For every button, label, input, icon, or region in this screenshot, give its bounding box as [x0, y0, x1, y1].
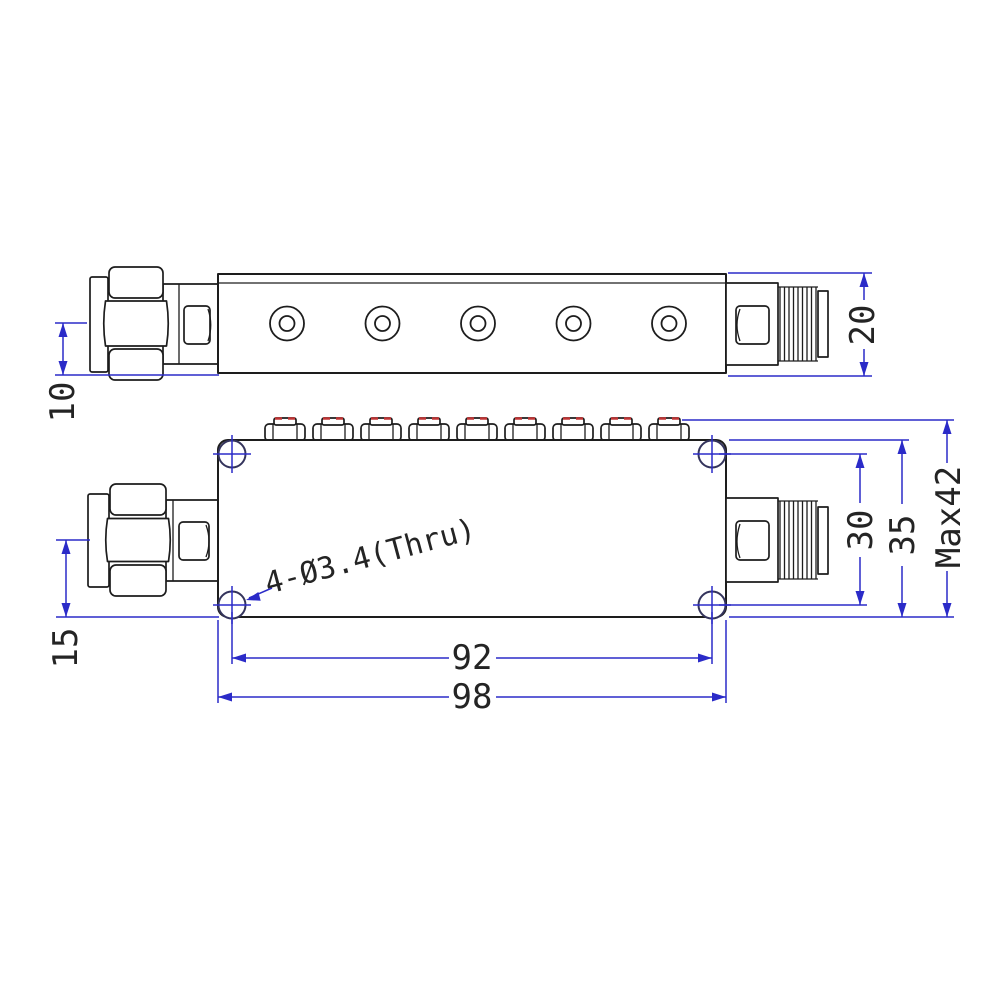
arrowhead-icon	[943, 420, 952, 434]
dim-20-label: 20	[843, 305, 883, 346]
arrowhead-icon	[698, 654, 712, 663]
plan-left-connector-icon	[88, 484, 218, 596]
tuning-screw-icon	[649, 418, 689, 441]
dim-98-label: 98	[452, 677, 493, 717]
side-view	[90, 267, 828, 380]
arrowhead-icon	[62, 603, 71, 617]
technical-drawing-page: 10 20 15 30 35	[0, 0, 1000, 1000]
tuning-screw-icon	[313, 418, 353, 441]
dim-15-label: 15	[46, 628, 86, 669]
dim-max42-label: Max42	[929, 466, 969, 568]
dim-92-label: 92	[452, 638, 493, 678]
arrowhead-icon	[860, 362, 869, 376]
hex-nut-top-flat	[109, 267, 163, 298]
hex-nut-top-flat	[110, 484, 166, 515]
arrowhead-icon	[712, 693, 726, 702]
dim-92: 92	[232, 612, 712, 678]
arrowhead-icon	[943, 603, 952, 617]
side-right-connector-icon	[726, 283, 828, 365]
dim-30-label: 30	[841, 510, 881, 551]
screw-hole-icon	[366, 307, 400, 341]
side-left-connector-icon	[90, 267, 218, 380]
dim-10-label: 10	[43, 382, 83, 423]
arrowhead-icon	[59, 361, 68, 375]
plan-right-connector-icon	[726, 498, 828, 582]
arrowhead-icon	[59, 323, 68, 337]
arrowhead-icon	[62, 540, 71, 554]
arrowhead-icon	[860, 273, 869, 287]
hex-nut-bottom-flat	[110, 565, 166, 596]
hex-nut-mid-flat	[104, 301, 169, 346]
thread-lines	[780, 501, 816, 579]
tuning-screw-icon	[457, 418, 497, 441]
connector-socket-block	[736, 306, 769, 344]
screw-hole-icon	[652, 307, 686, 341]
connector-end-cap	[818, 507, 828, 574]
connector-pin-block	[179, 522, 209, 560]
arrowhead-icon	[856, 591, 865, 605]
screw-hole-icon	[270, 307, 304, 341]
tuning-screw-icon	[265, 418, 305, 441]
arrowhead-icon	[232, 654, 246, 663]
tuning-screw-icon	[601, 418, 641, 441]
cad-drawing-canvas: 10 20 15 30 35	[0, 0, 1000, 1000]
tuning-screw-icon	[361, 418, 401, 441]
hex-nut-mid-flat	[106, 519, 171, 562]
tuning-screw-icon	[553, 418, 593, 441]
tuning-screws-row	[265, 418, 689, 441]
connector-end-cap	[818, 291, 828, 357]
connector-socket-block	[736, 521, 769, 560]
dim-35-label: 35	[883, 515, 923, 556]
tuning-screw-icon	[505, 418, 545, 441]
screw-hole-icon	[557, 307, 591, 341]
connector-pin-block	[184, 306, 210, 344]
screw-hole-icon	[461, 307, 495, 341]
thread-lines	[780, 287, 816, 361]
arrowhead-icon	[218, 693, 232, 702]
arrowhead-icon	[898, 440, 907, 454]
tuning-screw-icon	[409, 418, 449, 441]
arrowhead-icon	[898, 603, 907, 617]
arrowhead-icon	[856, 454, 865, 468]
